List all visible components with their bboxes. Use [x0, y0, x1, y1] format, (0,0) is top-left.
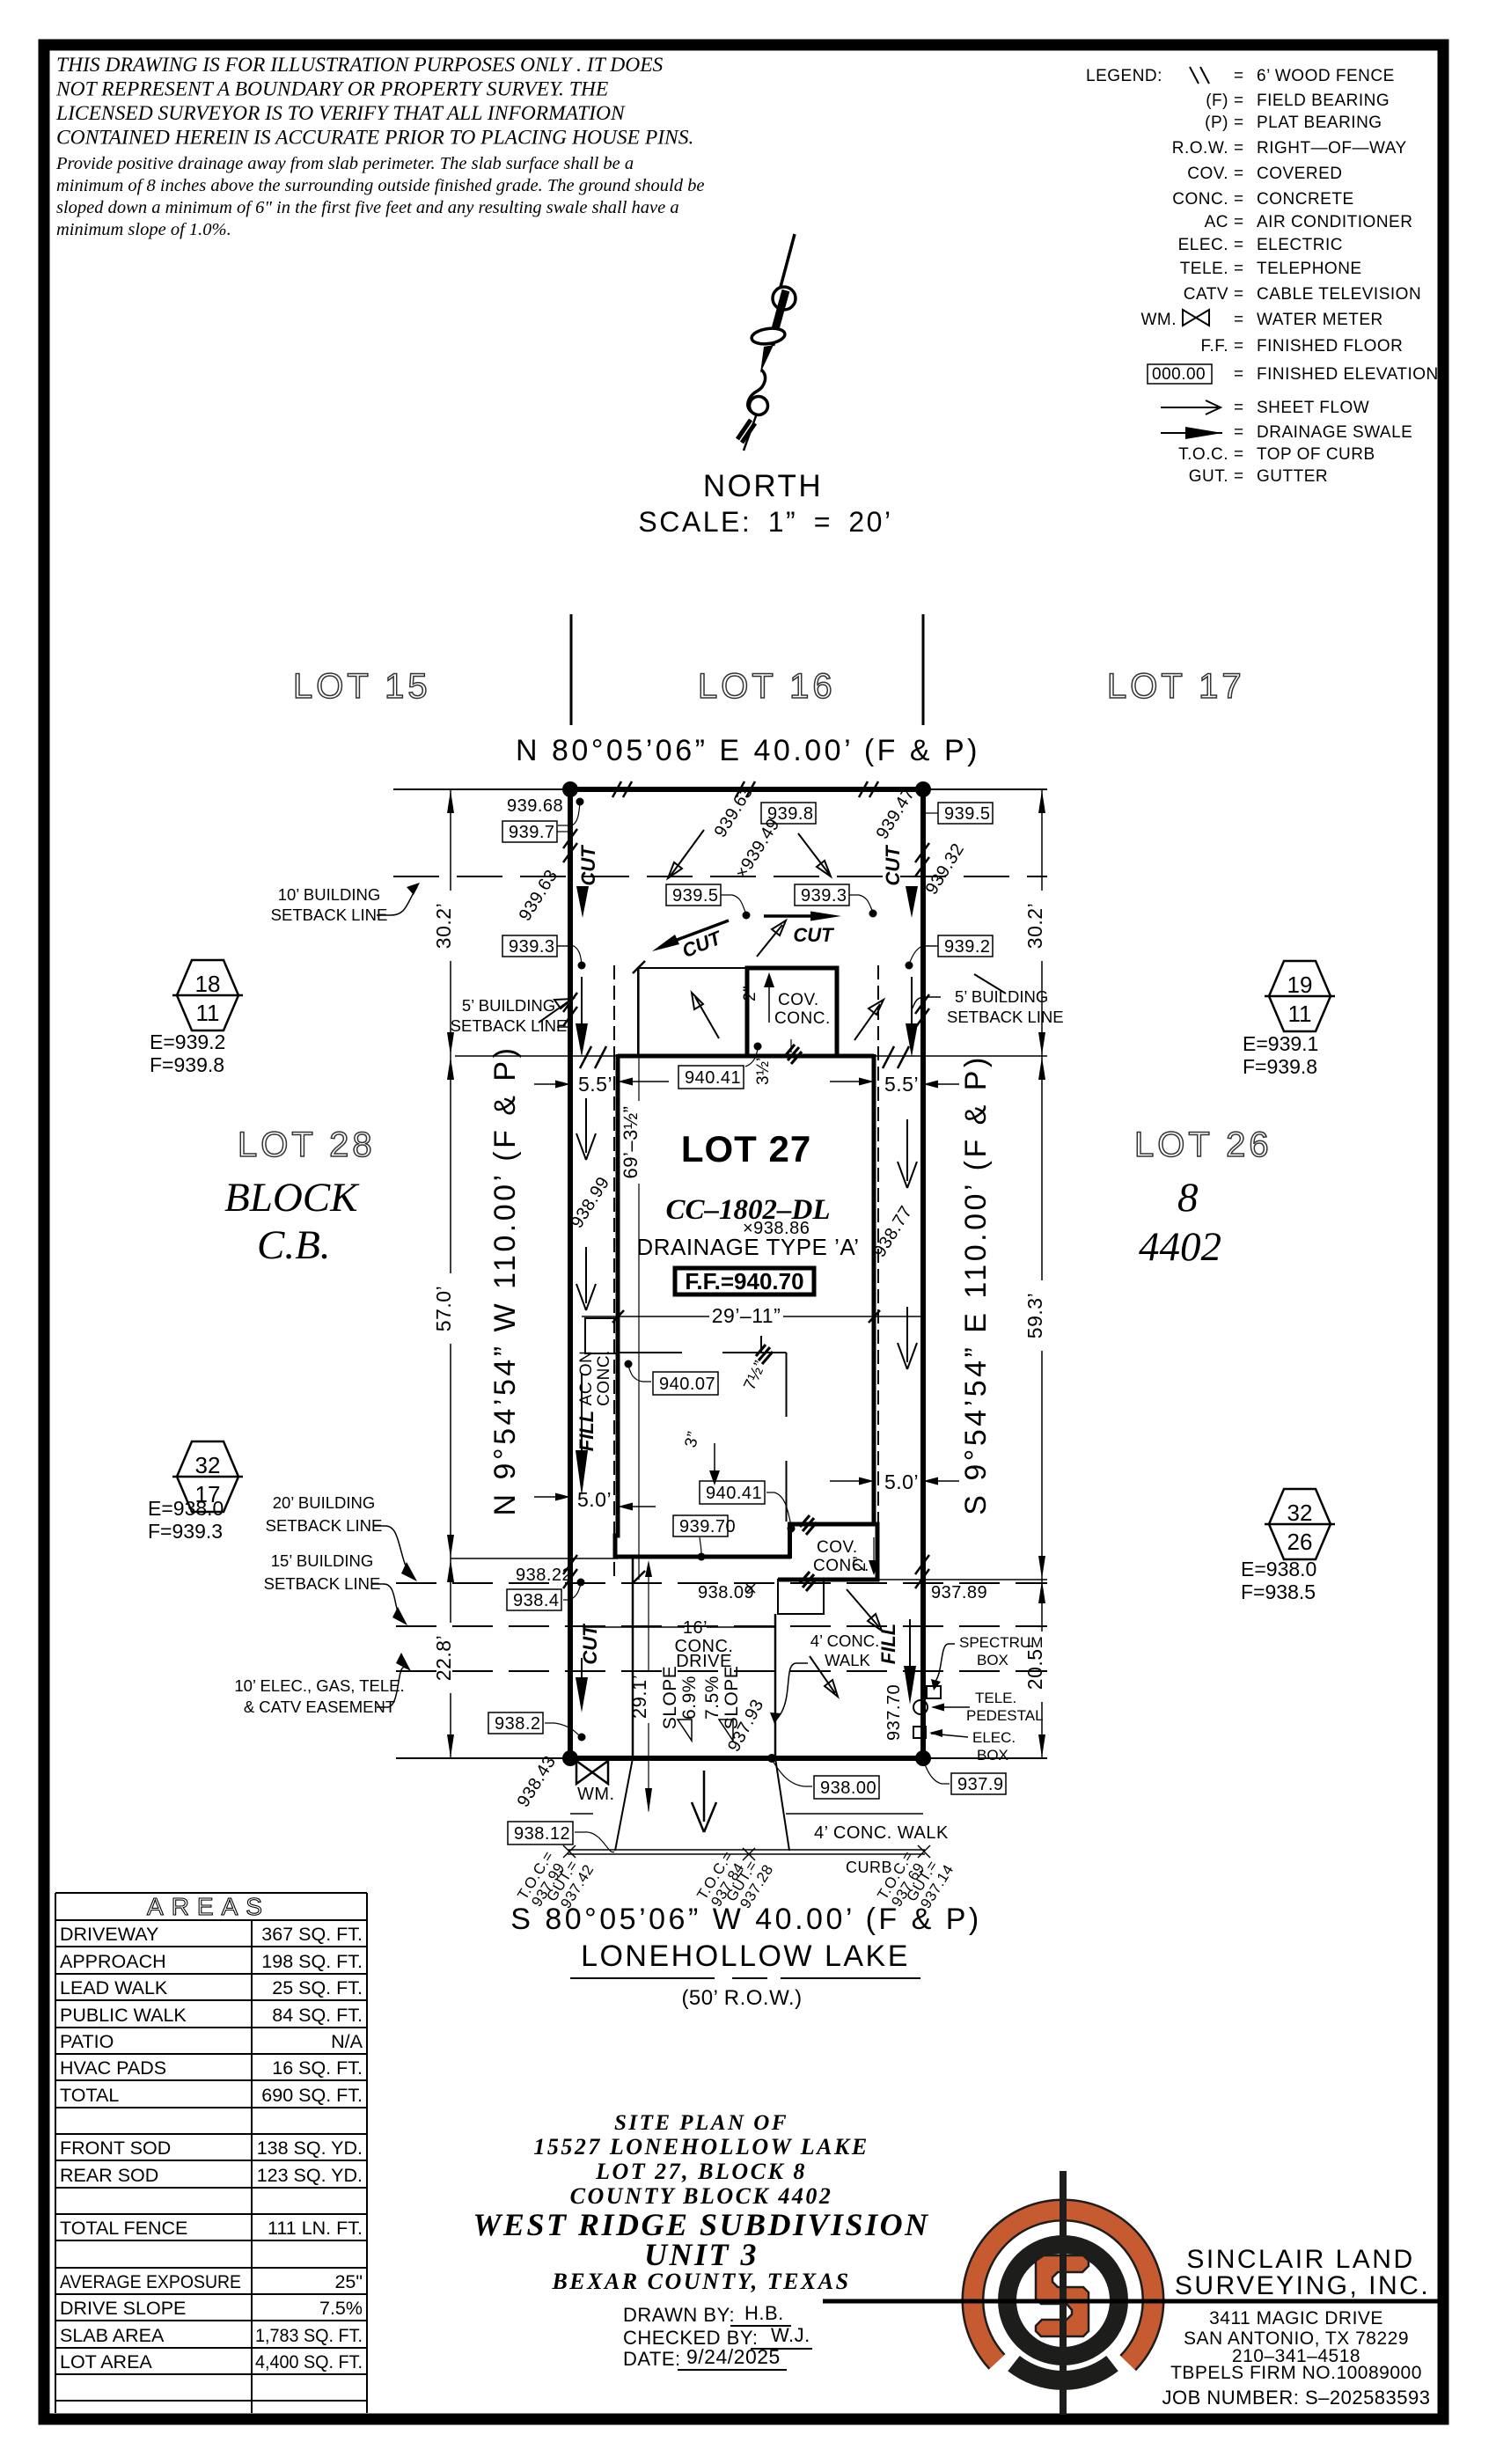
svg-text:BOX: BOX	[977, 1652, 1008, 1668]
svg-text:59.3’: 59.3’	[1023, 1293, 1046, 1338]
svg-text:939.7: 939.7	[509, 823, 555, 842]
svg-text:F=938.5: F=938.5	[1241, 1580, 1316, 1603]
svg-text:minimum of 8 inches above the: minimum of 8 inches above the surroundin…	[56, 176, 704, 195]
svg-text:E=939.2: E=939.2	[150, 1030, 225, 1053]
svg-text:W.J.: W.J.	[771, 2324, 810, 2346]
svg-text:ELEC.: ELEC.	[1178, 236, 1228, 254]
svg-text:THIS DRAWING IS FOR ILLUSTRATI: THIS DRAWING IS FOR ILLUSTRATION PURPOSE…	[56, 54, 664, 77]
svg-text:BEXAR COUNTY, TEXAS: BEXAR COUNTY, TEXAS	[551, 2269, 850, 2294]
svg-text:10’ BUILDING: 10’ BUILDING	[278, 885, 381, 904]
svg-text:REAR SOD: REAR SOD	[60, 2165, 158, 2186]
svg-text:LOT 27, BLOCK 8: LOT 27, BLOCK 8	[595, 2159, 807, 2184]
svg-text:AC ON: AC ON	[577, 1351, 596, 1406]
svg-text:LONEHOLLOW LAKE: LONEHOLLOW LAKE	[581, 1940, 910, 1973]
svg-text:SETBACK LINE: SETBACK LINE	[947, 1008, 1064, 1026]
svg-text:COV.: COV.	[778, 991, 819, 1009]
svg-text:=: =	[1234, 190, 1244, 209]
svg-text:N 9°54’54” W 110.00’ (F & P): N 9°54’54” W 110.00’ (F & P)	[488, 1045, 522, 1516]
svg-text:COV.: COV.	[1187, 165, 1228, 183]
svg-text:940.41: 940.41	[685, 1068, 741, 1088]
svg-text:COVERED: COVERED	[1257, 165, 1342, 183]
svg-text:DRAINAGE SWALE: DRAINAGE SWALE	[1257, 423, 1412, 442]
svg-text:=: =	[1234, 165, 1244, 183]
svg-text:LICENSED SURVEYOR IS TO VERIFY: LICENSED SURVEYOR IS TO VERIFY THAT ALL …	[55, 102, 626, 125]
svg-text:SETBACK LINE: SETBACK LINE	[264, 1574, 381, 1593]
svg-text:FINISHED ELEVATION: FINISHED ELEVATION	[1257, 365, 1439, 384]
svg-text:S 9°54’54” E 110.00’ (F & P): S 9°54’54” E 110.00’ (F & P)	[959, 1054, 993, 1515]
svg-text:=: =	[1234, 236, 1244, 254]
svg-text:938.22: 938.22	[516, 1566, 572, 1585]
svg-text:F.F.: F.F.	[1200, 337, 1228, 356]
svg-text:APPROACH: APPROACH	[60, 1951, 166, 1972]
svg-text:CONC.: CONC.	[1172, 190, 1228, 209]
svg-text:TELE.: TELE.	[975, 1690, 1016, 1706]
svg-text:11: 11	[1288, 1001, 1312, 1027]
svg-text:LOT 16: LOT 16	[698, 667, 836, 706]
svg-text:5.5’: 5.5’	[884, 1073, 919, 1096]
svg-text:938.12: 938.12	[514, 1824, 570, 1844]
svg-text:=: =	[1234, 213, 1244, 231]
svg-text:6.9%: 6.9%	[679, 1676, 700, 1720]
svg-text:CATV: CATV	[1184, 285, 1228, 304]
svg-text:8: 8	[1177, 1175, 1199, 1221]
svg-text:939.5: 939.5	[944, 804, 991, 824]
svg-text:BOX: BOX	[977, 1747, 1008, 1764]
svg-text:=: =	[1234, 285, 1244, 304]
svg-text:LOT 15: LOT 15	[293, 667, 431, 706]
svg-text:BLOCK: BLOCK	[224, 1175, 360, 1221]
svg-text:LOT 17: LOT 17	[1107, 667, 1245, 706]
svg-text:H.B.: H.B.	[744, 2302, 784, 2324]
svg-text:690 SQ. FT.: 690 SQ. FT.	[261, 2085, 363, 2106]
svg-text:LOT 27: LOT 27	[681, 1128, 811, 1170]
svg-text:N/A: N/A	[331, 2031, 363, 2052]
svg-text:TOTAL: TOTAL	[60, 2085, 119, 2106]
svg-text:NORTH: NORTH	[703, 469, 823, 503]
svg-text:AC: AC	[1205, 213, 1228, 231]
svg-text:939.3: 939.3	[801, 886, 847, 906]
svg-text:COUNTY BLOCK 4402: COUNTY BLOCK 4402	[570, 2183, 833, 2209]
svg-text:HVAC PADS: HVAC PADS	[60, 2057, 166, 2079]
svg-text:TOP OF CURB: TOP OF CURB	[1257, 445, 1375, 464]
svg-text:TELE.: TELE.	[1180, 260, 1228, 278]
svg-text:DRIVEWAY: DRIVEWAY	[60, 1924, 158, 1945]
svg-text:GUT.: GUT.	[1189, 467, 1228, 486]
svg-text:937.89: 937.89	[931, 1583, 987, 1602]
svg-text:30.2’: 30.2’	[1023, 903, 1046, 949]
svg-text:FINISHED FLOOR: FINISHED FLOOR	[1257, 337, 1403, 356]
svg-text:CONCRETE: CONCRETE	[1257, 190, 1354, 209]
svg-text:=: =	[1234, 92, 1244, 110]
svg-text:CURB: CURB	[846, 1859, 892, 1876]
svg-text:SHEET FLOW: SHEET FLOW	[1257, 399, 1369, 417]
svg-text:16’: 16’	[683, 1618, 708, 1638]
svg-text:CUT: CUT	[793, 924, 834, 946]
svg-text:LEGEND:: LEGEND:	[1086, 67, 1162, 85]
svg-text:JOB NUMBER: S–202583593: JOB NUMBER: S–202583593	[1162, 2387, 1431, 2409]
svg-text:SCALE: 1” = 20’: SCALE: 1” = 20’	[638, 506, 892, 538]
svg-text:N 80°05’06” E 40.00’ (F & P): N 80°05’06” E 40.00’ (F & P)	[516, 734, 980, 767]
svg-text:26: 26	[1287, 1529, 1313, 1555]
svg-text:000.00: 000.00	[1152, 365, 1206, 384]
svg-text:=: =	[1234, 445, 1244, 464]
svg-text:minimum slope of 1.0%.: minimum slope of 1.0%.	[56, 220, 231, 239]
svg-text:WM.: WM.	[577, 1785, 615, 1804]
svg-text:16 SQ. FT.: 16 SQ. FT.	[272, 2057, 363, 2079]
svg-text:SLAB AREA: SLAB AREA	[60, 2325, 165, 2346]
svg-text:LOT AREA: LOT AREA	[60, 2351, 152, 2372]
svg-text:WALK: WALK	[825, 1651, 870, 1669]
svg-text:sloped down a minimum of 6" in: sloped down a minimum of 6" in the first…	[56, 198, 679, 217]
svg-text:4402: 4402	[1139, 1224, 1221, 1270]
svg-text:F=939.8: F=939.8	[1243, 1055, 1317, 1078]
svg-text:198 SQ. FT.: 198 SQ. FT.	[261, 1951, 363, 1972]
svg-text:4’ CONC.: 4’ CONC.	[810, 1632, 879, 1650]
svg-text:5.0’: 5.0’	[884, 1470, 919, 1493]
svg-text:F.F.=940.70: F.F.=940.70	[685, 1268, 803, 1294]
svg-text:CUT: CUT	[882, 845, 904, 886]
svg-text:ELEC.: ELEC.	[972, 1729, 1016, 1746]
svg-text:CONC.: CONC.	[774, 1009, 831, 1028]
svg-text:=: =	[1234, 67, 1244, 85]
svg-text:7.5%: 7.5%	[319, 2298, 363, 2319]
svg-text:=: =	[1234, 139, 1244, 158]
svg-text:WM.: WM.	[1140, 311, 1177, 329]
svg-text:11: 11	[196, 1000, 220, 1026]
svg-text:(P): (P)	[1205, 114, 1228, 132]
svg-text:SITE PLAN OF: SITE PLAN OF	[614, 2111, 788, 2135]
svg-text:FILL: FILL	[576, 1411, 598, 1451]
svg-text:939.68: 939.68	[507, 796, 563, 816]
svg-text:Provide positive drainage away: Provide positive drainage away from slab…	[55, 154, 634, 173]
svg-text:939.2: 939.2	[944, 937, 991, 957]
svg-text:6’ WOOD FENCE: 6’ WOOD FENCE	[1257, 67, 1395, 85]
svg-text:18: 18	[195, 971, 221, 997]
svg-text:SURVEYING, INC.: SURVEYING, INC.	[1175, 2271, 1430, 2300]
svg-text:29’–11”: 29’–11”	[712, 1304, 781, 1327]
svg-text:84 SQ. FT.: 84 SQ. FT.	[272, 2005, 363, 2026]
svg-text:25": 25"	[334, 2271, 363, 2292]
svg-text:138 SQ. YD.: 138 SQ. YD.	[257, 2138, 363, 2159]
svg-text:E=938.0: E=938.0	[1241, 1558, 1316, 1580]
svg-text:FIELD BEARING: FIELD BEARING	[1257, 92, 1390, 110]
svg-text:938.00: 938.00	[820, 1778, 876, 1798]
svg-text:=: =	[1234, 114, 1244, 132]
svg-text:CABLE TELEVISION: CABLE TELEVISION	[1257, 285, 1421, 304]
svg-text:TOTAL FENCE: TOTAL FENCE	[60, 2218, 187, 2239]
svg-text:938.2: 938.2	[495, 1714, 541, 1734]
svg-text:ELECTRIC: ELECTRIC	[1257, 236, 1343, 254]
svg-text:32: 32	[1287, 1500, 1313, 1526]
svg-text:5.0’: 5.0’	[577, 1488, 612, 1511]
svg-text:COV.: COV.	[817, 1538, 858, 1557]
svg-text:RIGHT—OF—WAY: RIGHT—OF—WAY	[1257, 139, 1407, 158]
svg-text:E=938.0: E=938.0	[148, 1497, 224, 1520]
svg-text:22.8’: 22.8’	[432, 1635, 455, 1681]
svg-text:WATER METER: WATER METER	[1257, 311, 1383, 329]
svg-text:939.70: 939.70	[679, 1517, 736, 1536]
svg-text:69’–3½”: 69’–3½”	[620, 1105, 642, 1178]
svg-text:4,400 SQ. FT.: 4,400 SQ. FT.	[255, 2351, 363, 2372]
svg-text:F=939.3: F=939.3	[148, 1520, 223, 1543]
svg-text:938.09: 938.09	[698, 1583, 754, 1602]
svg-text:57.0’: 57.0’	[432, 1286, 455, 1331]
svg-text:LOT 28: LOT 28	[238, 1126, 376, 1164]
svg-text:LOT 26: LOT 26	[1134, 1126, 1272, 1164]
svg-text:30.2’: 30.2’	[432, 903, 455, 949]
svg-text:937.70: 937.70	[884, 1684, 904, 1741]
svg-text:SETBACK LINE: SETBACK LINE	[266, 1516, 383, 1535]
svg-text:=: =	[1234, 337, 1244, 356]
svg-text:DRIVE SLOPE: DRIVE SLOPE	[60, 2298, 186, 2319]
svg-text:940.41: 940.41	[706, 1484, 762, 1503]
svg-text:3½”: 3½”	[754, 1055, 773, 1085]
svg-text:PUBLIC WALK: PUBLIC WALK	[60, 2005, 187, 2026]
svg-text:=: =	[1234, 423, 1244, 442]
svg-text:PATIO: PATIO	[60, 2031, 114, 2052]
svg-text:938.4: 938.4	[513, 1591, 560, 1610]
svg-text:32: 32	[195, 1452, 221, 1478]
svg-text:SETBACK LINE: SETBACK LINE	[271, 906, 388, 924]
svg-text:LEAD WALK: LEAD WALK	[60, 1977, 168, 1998]
svg-text:7.5%: 7.5%	[702, 1676, 722, 1720]
svg-text:123 SQ. YD.: 123 SQ. YD.	[257, 2165, 363, 2186]
svg-text:939.3: 939.3	[509, 937, 555, 957]
svg-text:29.1’: 29.1’	[628, 1675, 650, 1719]
svg-text:(F): (F)	[1206, 92, 1228, 110]
svg-text:5.5’: 5.5’	[578, 1073, 612, 1096]
svg-text:3411 MAGIC DRIVE: 3411 MAGIC DRIVE	[1209, 2308, 1383, 2328]
svg-text:GUTTER: GUTTER	[1257, 467, 1328, 486]
svg-text:=: =	[1234, 365, 1244, 384]
svg-text:2”: 2”	[851, 1556, 869, 1572]
svg-text:=: =	[1234, 399, 1244, 417]
svg-text:939.5: 939.5	[672, 886, 719, 906]
svg-text:20’ BUILDING: 20’ BUILDING	[273, 1493, 376, 1512]
svg-text:T.O.C.: T.O.C.	[1178, 445, 1228, 464]
svg-text:AREAS: AREAS	[147, 1893, 270, 1920]
svg-text:UNIT 3: UNIT 3	[644, 2237, 759, 2272]
svg-text:=: =	[1234, 260, 1244, 278]
svg-text:=: =	[1234, 467, 1244, 486]
svg-text:E=939.1: E=939.1	[1243, 1032, 1318, 1055]
svg-text:937.9: 937.9	[957, 1775, 1004, 1794]
svg-text:SETBACK LINE: SETBACK LINE	[451, 1016, 568, 1035]
svg-text:NOT REPRESENT A BOUNDARY OR PR: NOT REPRESENT A BOUNDARY OR PROPERTY SUR…	[55, 78, 608, 101]
svg-text:DRAINAGE TYPE ’A’: DRAINAGE TYPE ’A’	[636, 1234, 859, 1260]
svg-text:9/24/2025: 9/24/2025	[686, 2345, 781, 2368]
svg-text:CONTAINED HEREIN IS ACCURATE P: CONTAINED HEREIN IS ACCURATE PRIOR TO PL…	[56, 127, 693, 150]
svg-text:367 SQ. FT.: 367 SQ. FT.	[261, 1924, 363, 1945]
svg-text:F=939.8: F=939.8	[150, 1053, 224, 1076]
svg-text:TBPELS FIRM NO.10089000: TBPELS FIRM NO.10089000	[1170, 2363, 1422, 2383]
svg-text:PLAT BEARING: PLAT BEARING	[1257, 114, 1382, 132]
svg-text:AIR CONDITIONER: AIR CONDITIONER	[1257, 213, 1412, 231]
svg-text:R.O.W.: R.O.W.	[1172, 139, 1228, 158]
svg-text:940.07: 940.07	[659, 1375, 715, 1394]
svg-text:DATE:: DATE:	[623, 2348, 681, 2370]
svg-text:4’ CONC. WALK: 4’ CONC. WALK	[814, 1823, 949, 1843]
svg-text:AVERAGE EXPOSURE: AVERAGE EXPOSURE	[60, 2271, 241, 2292]
svg-text:5’ BUILDING: 5’ BUILDING	[462, 996, 555, 1015]
svg-text:CONC.: CONC.	[595, 1350, 613, 1406]
svg-text:=: =	[1234, 311, 1244, 329]
svg-text:SINCLAIR LAND: SINCLAIR LAND	[1186, 2245, 1414, 2274]
svg-text:CUT: CUT	[577, 845, 599, 886]
svg-text:C.B.: C.B.	[257, 1222, 331, 1268]
svg-text:(50’ R.O.W.): (50’ R.O.W.)	[681, 1986, 802, 2010]
svg-text:1,783 SQ. FT.: 1,783 SQ. FT.	[255, 2325, 363, 2346]
svg-text:TELEPHONE: TELEPHONE	[1257, 260, 1362, 278]
svg-text:DRAWN BY:: DRAWN BY:	[623, 2304, 735, 2326]
svg-text:10’ ELEC., GAS, TELE.: 10’ ELEC., GAS, TELE.	[234, 1676, 404, 1695]
svg-text:25 SQ. FT.: 25 SQ. FT.	[272, 1977, 363, 1998]
svg-text:111 LN. FT.: 111 LN. FT.	[268, 2218, 363, 2239]
svg-text:15’ BUILDING: 15’ BUILDING	[271, 1551, 374, 1570]
svg-text:SPECTRUM: SPECTRUM	[959, 1634, 1043, 1651]
svg-text:15527 LONEHOLLOW LAKE: 15527 LONEHOLLOW LAKE	[533, 2134, 869, 2160]
svg-text:& CATV EASEMENT: & CATV EASEMENT	[244, 1698, 395, 1716]
svg-text:19: 19	[1287, 972, 1313, 998]
svg-text:PEDESTAL: PEDESTAL	[966, 1707, 1044, 1724]
svg-text:2”: 2”	[741, 986, 759, 1001]
svg-text:FRONT SOD: FRONT SOD	[60, 2138, 171, 2159]
